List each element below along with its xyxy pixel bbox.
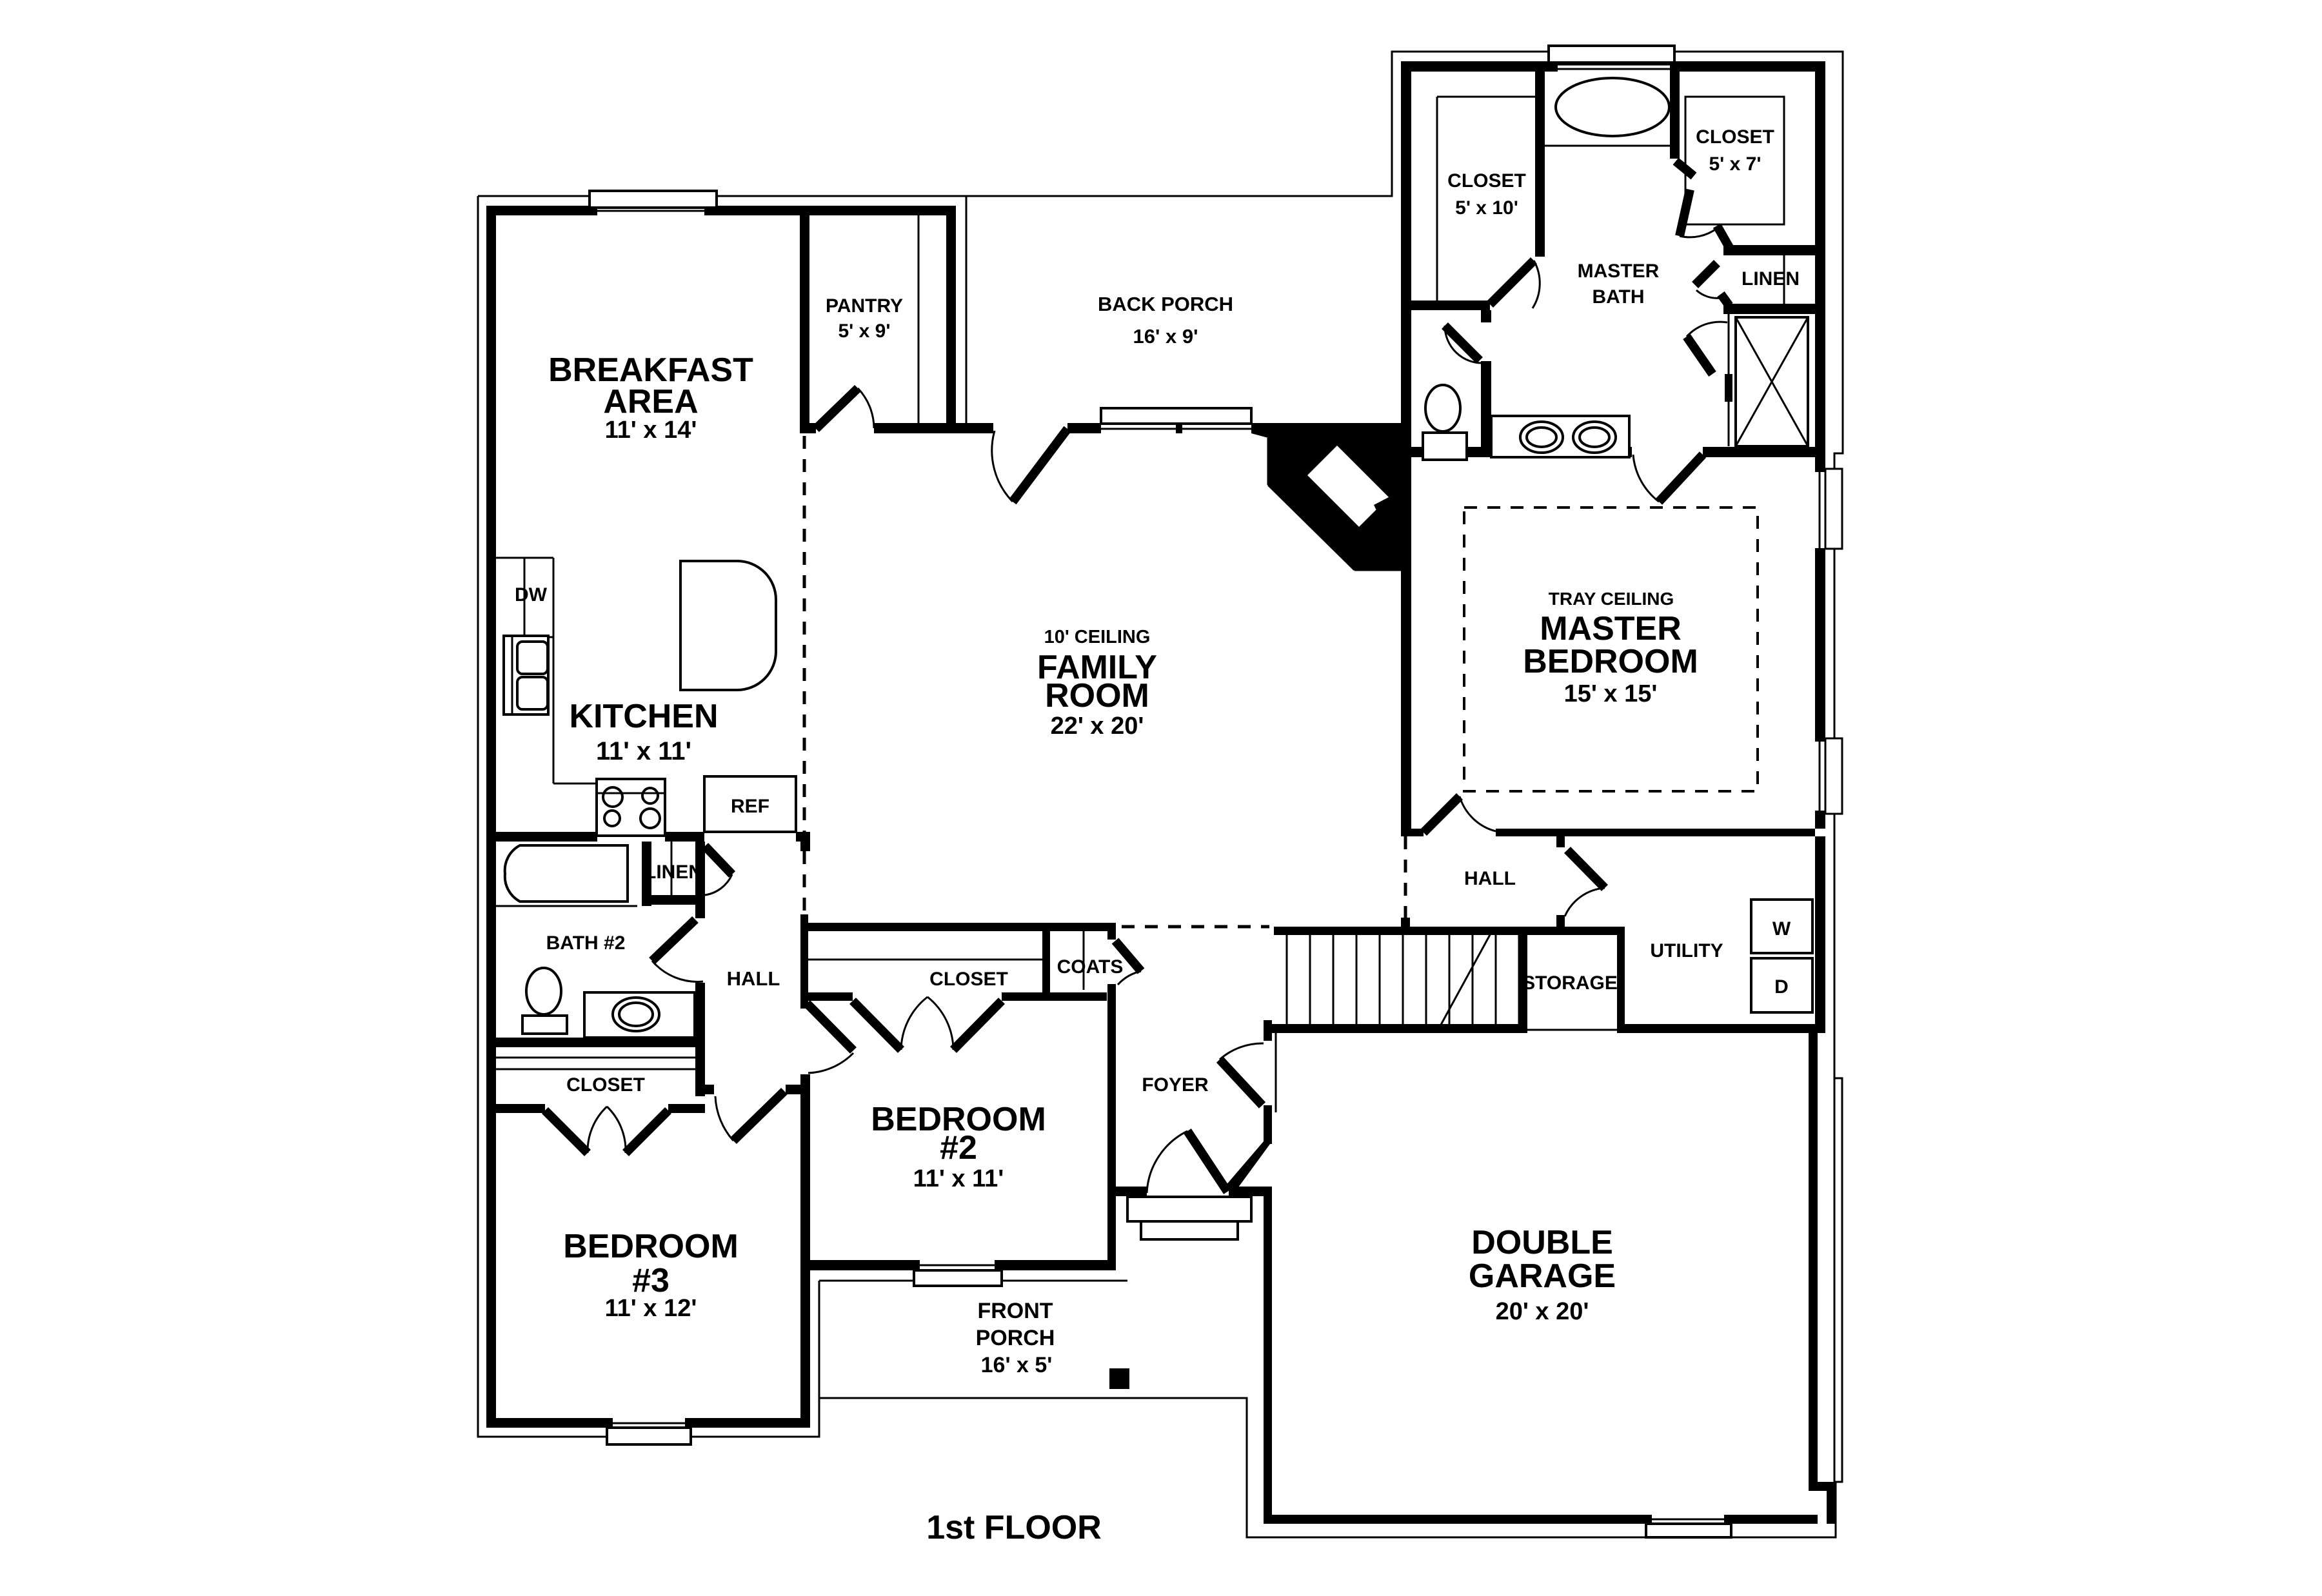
svg-text:GARAGE: GARAGE: [1469, 1257, 1616, 1295]
svg-text:CLOSET: CLOSET: [566, 1074, 645, 1096]
svg-text:UTILITY: UTILITY: [1650, 940, 1723, 961]
svg-text:REF: REF: [731, 796, 769, 817]
svg-text:11' x 14': 11' x 14': [605, 417, 697, 444]
svg-text:BATH: BATH: [1592, 286, 1644, 308]
svg-text:W: W: [1772, 918, 1791, 940]
svg-text:5' x 9': 5' x 9': [838, 320, 891, 342]
svg-text:11' x 11': 11' x 11': [596, 737, 691, 765]
svg-text:5' x 10': 5' x 10': [1455, 197, 1518, 219]
svg-text:AREA: AREA: [603, 383, 698, 420]
svg-text:BEDROOM: BEDROOM: [563, 1228, 739, 1265]
svg-text:FOYER: FOYER: [1142, 1074, 1209, 1096]
svg-text:ROOM: ROOM: [1045, 677, 1149, 714]
svg-text:LINEN: LINEN: [1741, 268, 1800, 290]
svg-text:KITCHEN: KITCHEN: [569, 698, 718, 735]
svg-text:CLOSET: CLOSET: [1696, 126, 1774, 148]
svg-text:11' x 11': 11' x 11': [913, 1165, 1004, 1192]
svg-text:11' x 12': 11' x 12': [605, 1295, 697, 1322]
svg-text:BEDROOM: BEDROOM: [1523, 643, 1698, 680]
svg-text:#2: #2: [940, 1129, 977, 1167]
svg-text:TRAY CEILING: TRAY CEILING: [1549, 589, 1674, 609]
svg-text:COATS: COATS: [1057, 956, 1124, 978]
svg-text:PORCH: PORCH: [976, 1326, 1055, 1350]
svg-text:FRONT: FRONT: [977, 1299, 1053, 1323]
svg-text:PANTRY: PANTRY: [826, 295, 903, 317]
svg-text:#3: #3: [632, 1262, 670, 1299]
svg-text:16' x 9': 16' x 9': [1133, 325, 1198, 348]
svg-text:BATH #2: BATH #2: [546, 932, 626, 954]
svg-text:DW: DW: [515, 584, 548, 606]
svg-text:CLOSET: CLOSET: [929, 969, 1008, 990]
svg-text:D: D: [1774, 976, 1789, 998]
svg-text:15' x 15': 15' x 15': [1564, 680, 1658, 707]
svg-text:16' x 5': 16' x 5': [981, 1353, 1053, 1377]
svg-text:LINEN: LINEN: [644, 862, 702, 883]
svg-text:5' x 7': 5' x 7': [1709, 153, 1761, 175]
svg-text:CLOSET: CLOSET: [1447, 170, 1526, 192]
svg-text:1st FLOOR: 1st FLOOR: [926, 1509, 1102, 1546]
svg-text:HALL: HALL: [1464, 868, 1516, 889]
svg-text:22' x 20': 22' x 20': [1051, 713, 1144, 740]
svg-text:DOUBLE: DOUBLE: [1471, 1224, 1613, 1261]
svg-text:10' CEILING: 10' CEILING: [1044, 627, 1151, 647]
svg-text:STORAGE: STORAGE: [1522, 972, 1618, 994]
svg-text:HALL: HALL: [727, 967, 780, 990]
svg-text:MASTER: MASTER: [1578, 261, 1660, 282]
svg-text:MASTER: MASTER: [1540, 610, 1682, 647]
svg-text:BACK PORCH: BACK PORCH: [1098, 293, 1233, 315]
svg-text:20' x 20': 20' x 20': [1496, 1298, 1589, 1325]
